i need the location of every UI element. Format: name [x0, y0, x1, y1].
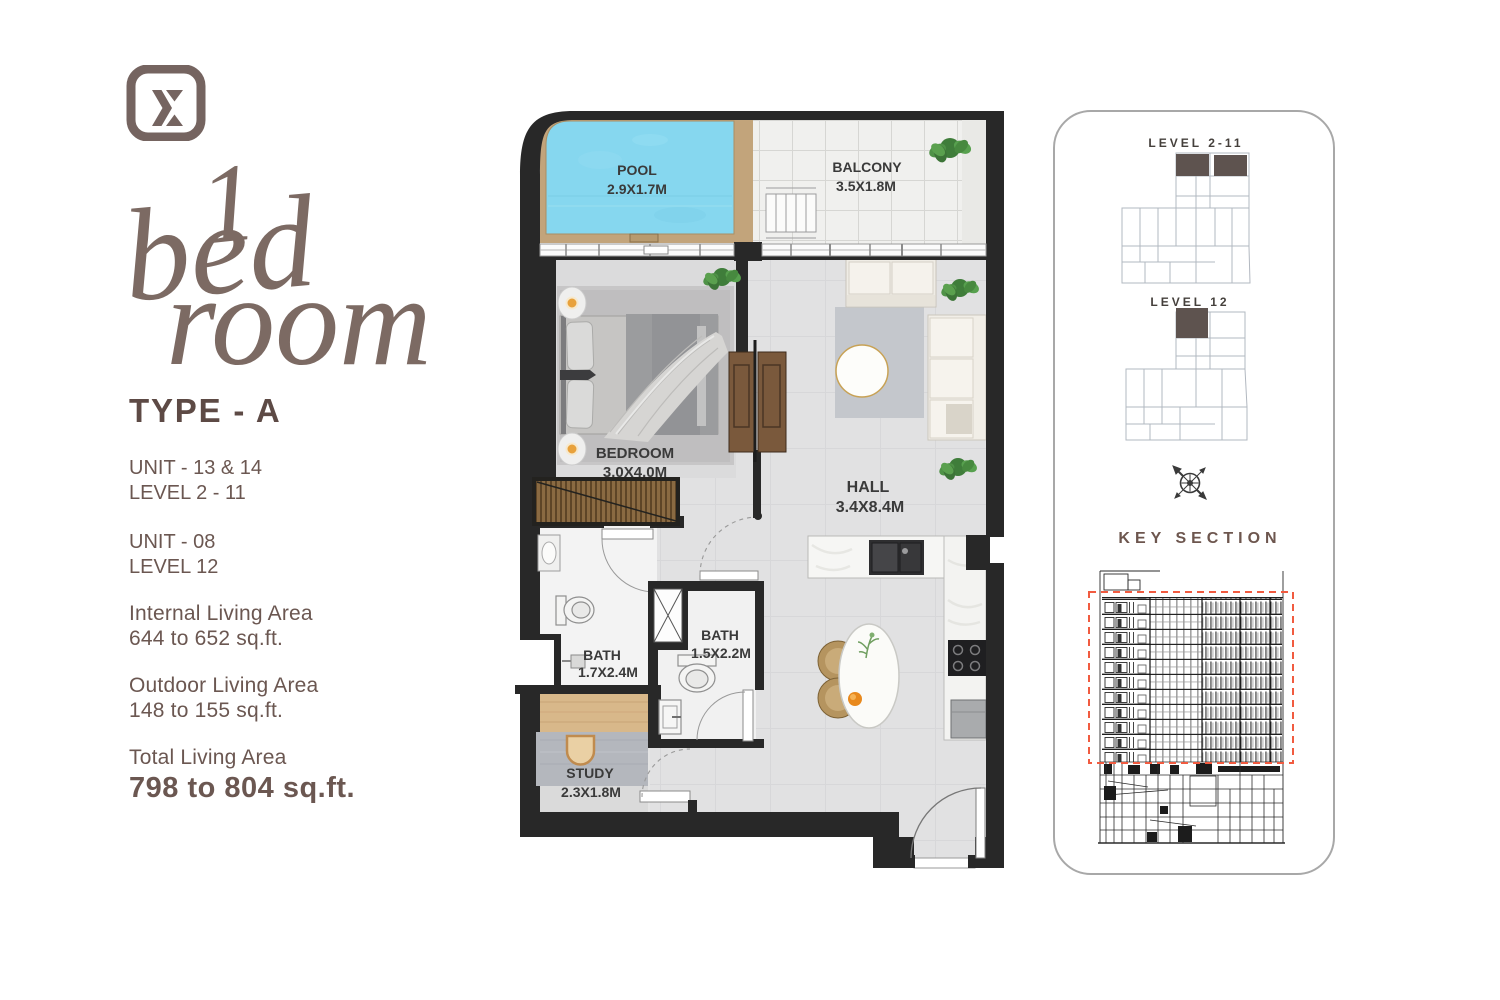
svg-text:1.5X2.2M: 1.5X2.2M — [691, 645, 751, 661]
svg-text:3.4X8.4M: 3.4X8.4M — [836, 499, 904, 516]
svg-text:KEY SECTION: KEY SECTION — [1118, 530, 1281, 547]
svg-text:3.0X4.0M: 3.0X4.0M — [603, 464, 667, 481]
svg-text:HALL: HALL — [847, 479, 890, 496]
svg-text:LEVEL 2-11: LEVEL 2-11 — [1148, 136, 1243, 150]
svg-text:LEVEL 12: LEVEL 12 — [1150, 295, 1229, 309]
svg-text:BATH: BATH — [583, 647, 621, 663]
svg-text:3.5X1.8M: 3.5X1.8M — [836, 178, 896, 194]
svg-text:2.9X1.7M: 2.9X1.7M — [607, 181, 667, 197]
svg-text:STUDY: STUDY — [566, 765, 614, 781]
svg-text:BEDROOM: BEDROOM — [596, 445, 674, 462]
svg-text:BATH: BATH — [701, 627, 739, 643]
svg-text:POOL: POOL — [617, 162, 657, 178]
svg-text:BALCONY: BALCONY — [832, 159, 902, 175]
svg-text:2.3X1.8M: 2.3X1.8M — [561, 784, 621, 800]
svg-text:1.7X2.4M: 1.7X2.4M — [578, 664, 638, 680]
